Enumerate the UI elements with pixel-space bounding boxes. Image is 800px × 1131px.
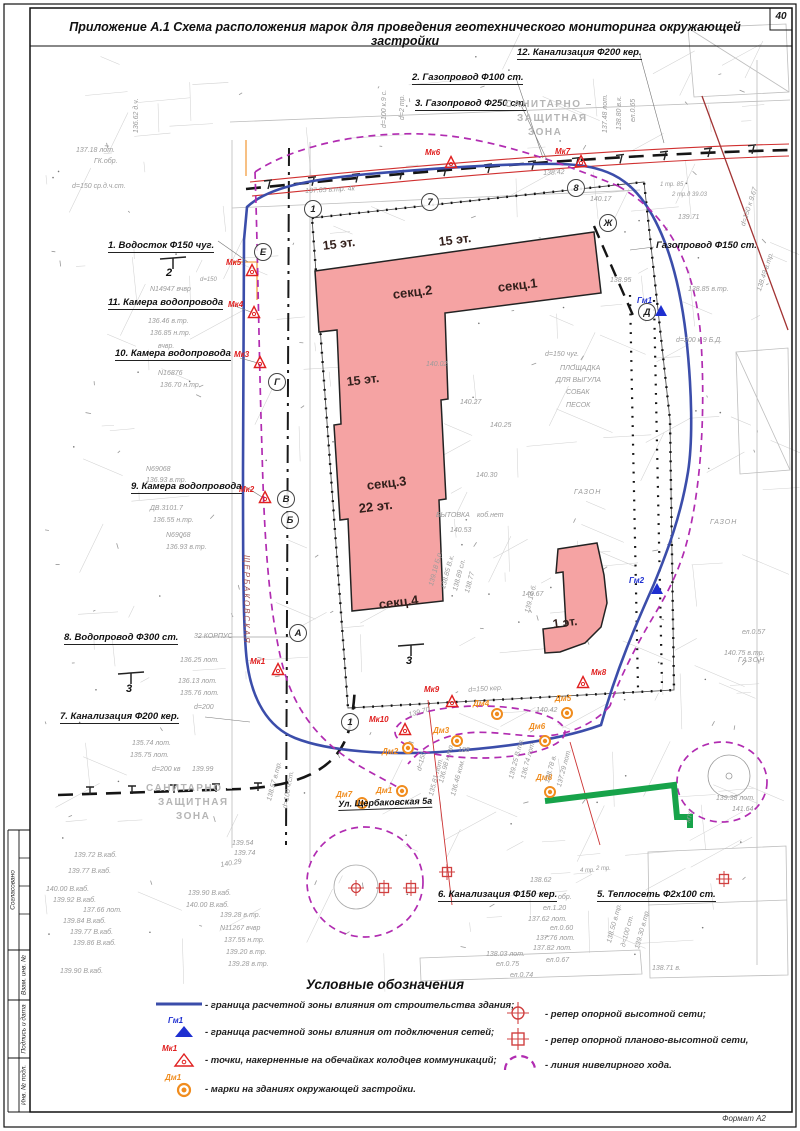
sanitary-zone-top-line1: САНИТАРНО – — [505, 100, 593, 110]
mk-marker — [577, 677, 588, 688]
mk-marker — [399, 724, 410, 735]
format-label: Формат А2 — [700, 1114, 788, 1123]
axis-bubble: 1 — [342, 714, 359, 731]
dm-marker-label: Дм8 — [535, 773, 553, 782]
legend-title: Условные обозначения — [250, 977, 520, 992]
buildings — [315, 232, 607, 653]
sanitary-zone-left-line3: ЗОНА — [176, 812, 210, 822]
dm-marker-label: Дм2 — [381, 747, 399, 756]
legend-item-text: - репер опорной планово-высотной сети, — [545, 1036, 748, 1046]
legend-red-triangle-symbol — [172, 1052, 196, 1069]
axis-bubble: 7 — [422, 194, 439, 211]
dm-marker — [492, 709, 502, 719]
building-floors1-label: 1 эт. — [552, 615, 578, 630]
svg-text:В: В — [283, 494, 290, 505]
svg-text:Д: Д — [643, 307, 651, 318]
mk-marker-label: Мк1 — [250, 657, 266, 666]
building-floors22-label: 22 эт. — [358, 498, 393, 515]
axis-bubble: В — [278, 491, 295, 508]
sanitary-zone-top-line3: ЗОНА — [528, 128, 562, 138]
legend-item-text: - репер опорной высотной сети; — [545, 1010, 706, 1020]
mk-marker-label: Мк8 — [591, 668, 607, 677]
mk-marker-label: Мк3 — [234, 350, 250, 359]
legend-item-text: - граница расчетной зоны влияния от подк… — [205, 1028, 494, 1038]
axis-bubble: Г — [269, 374, 286, 391]
legend-level-line-symbol — [500, 1052, 540, 1074]
mk-marker-label: Мк4 — [228, 300, 244, 309]
axis-bubble: Б — [282, 512, 299, 529]
sanitary-zone-left-line2: ЗАЩИТНАЯ — [158, 798, 229, 808]
site-plan-svg: Мк5Мк4Мк3Мк2Мк1Мк6Мк7Мк8Мк9Мк10Дм2Дм3Дм4… — [0, 0, 800, 1131]
mk-marker-label: Мк6 — [425, 148, 441, 157]
dm-marker-label: Дм1 — [375, 786, 393, 795]
legend-item-text: - марки на зданиях окружающей застройки. — [205, 1085, 416, 1095]
legend-item-text: - точки, накерненные на обечайках колодц… — [205, 1056, 497, 1066]
stamp-inv-podl: Инв. № подл. — [21, 1065, 28, 1105]
stamp-podpis-data: Подпись и дата — [21, 1004, 28, 1053]
axis-bubble: Д — [639, 304, 656, 321]
mk-marker — [445, 157, 456, 168]
axis-bubble: 1 — [305, 201, 322, 218]
dm-marker — [452, 736, 462, 746]
stamp-vzam-inv: Взам. инв. № — [21, 955, 28, 995]
reper-square-marker — [403, 880, 419, 896]
svg-text:8: 8 — [573, 183, 579, 194]
reper-square-marker — [716, 871, 732, 887]
mk-marker-label: Мк7 — [555, 147, 571, 156]
dm-marker — [562, 708, 572, 718]
axis-bubble: Ж — [600, 215, 617, 232]
sanitary-zone-top-line2: ЗАЩИТНАЯ — [517, 114, 588, 124]
legend-orange-circle-symbol — [175, 1081, 193, 1099]
dm-marker-label: Дм3 — [432, 726, 450, 735]
stamp-soglasovano: Согласовано — [10, 870, 17, 910]
svg-text:А: А — [294, 628, 302, 639]
context-linework — [230, 24, 790, 981]
dm-marker — [403, 743, 413, 753]
gm-marker — [655, 305, 667, 316]
mk-marker — [259, 492, 270, 503]
legend-item-text: - граница расчетной зоны влияния от стро… — [205, 1001, 514, 1011]
legend-blue-triangle-symbol — [172, 1024, 196, 1040]
svg-text:Е: Е — [260, 247, 267, 258]
mk-marker-label: Мк10 — [369, 715, 389, 724]
axis-bubble: 8 — [568, 180, 585, 197]
sheet-title: Приложение А.1 Схема расположения марок … — [40, 20, 770, 48]
axis-bubble: А — [290, 625, 307, 642]
page-number: 40 — [770, 11, 792, 22]
svg-text:1: 1 — [310, 204, 315, 215]
svg-text:1: 1 — [347, 717, 352, 728]
legend-reper-circle-symbol — [504, 1000, 532, 1028]
dm-marker — [540, 736, 550, 746]
reper-square-marker — [376, 880, 392, 896]
reper-circle-marker — [348, 880, 364, 896]
legend-item-text: - линия нивелирного хода. — [545, 1061, 672, 1071]
legend-reper-square-symbol — [504, 1026, 532, 1054]
mk-marker-label: Мк9 — [424, 685, 440, 694]
svg-text:7: 7 — [427, 197, 433, 208]
gm-marker-label: Гм2 — [629, 576, 645, 585]
sanitary-zone-left-line1: САНИТАРНО – — [146, 784, 234, 794]
dm-marker — [545, 787, 555, 797]
dm-marker — [397, 786, 407, 796]
mk-marker-label: Мк5 — [226, 258, 242, 267]
reper-square-marker — [439, 864, 455, 880]
svg-text:Б: Б — [287, 515, 294, 526]
axis-bubble: Е — [255, 244, 272, 261]
heat-line — [545, 785, 690, 828]
dm-marker-label: Дм4 — [472, 699, 490, 708]
one-storey-building-outline — [543, 543, 607, 653]
legend-blue-line-symbol — [150, 998, 210, 1010]
drawing-sheet: Мк5Мк4Мк3Мк2Мк1Мк6Мк7Мк8Мк9Мк10Дм2Дм3Дм4… — [0, 0, 800, 1131]
dm-marker-label: Дм5 — [554, 694, 572, 703]
mk-marker-label: Мк2 — [239, 485, 255, 494]
svg-text:Ж: Ж — [603, 218, 614, 229]
dm-marker-label: Дм6 — [528, 722, 546, 731]
